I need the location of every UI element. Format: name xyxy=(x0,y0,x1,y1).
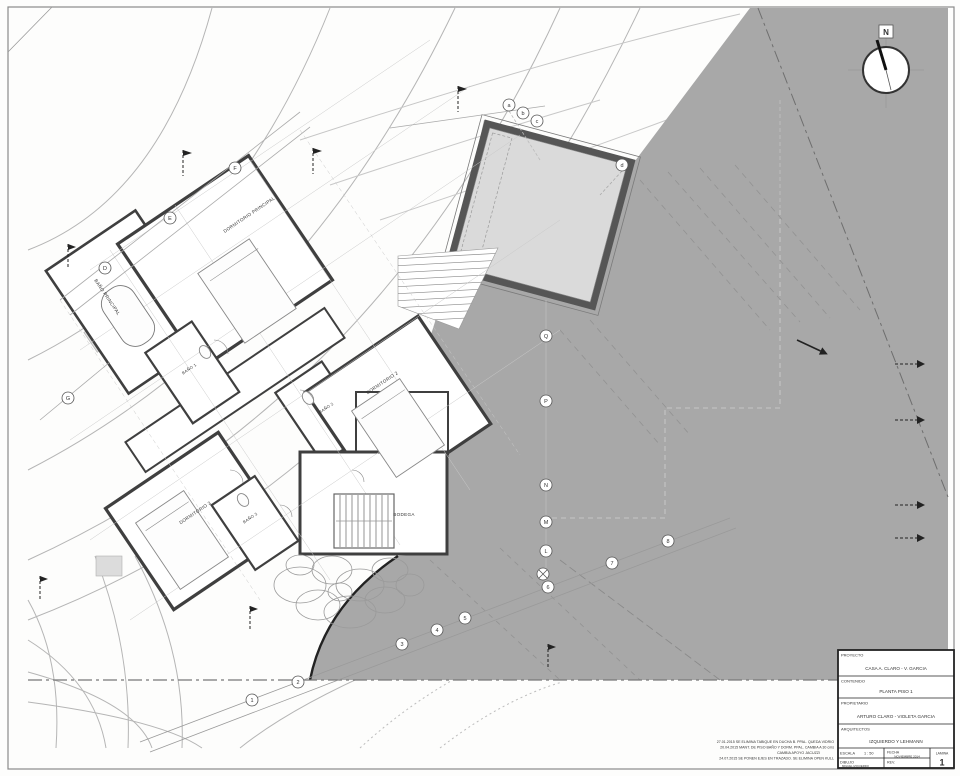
grid-label: 3 xyxy=(400,642,403,648)
grid-label: N xyxy=(544,483,548,489)
dibujo-value: MIGUEL IZQUIERDO xyxy=(842,764,870,768)
revision-note: 20.04.2015 MANT. DE PISO BAÑO Y DORM. PP… xyxy=(720,745,834,750)
grid-label: M xyxy=(544,520,549,526)
north-label: N xyxy=(883,28,889,37)
grid-label: 7 xyxy=(610,561,613,567)
escala-label: ESCALA xyxy=(840,752,855,756)
fecha-value: NOVIEMBRE 2014 xyxy=(894,755,920,759)
revision-note: 27.01.2015 SE ELIMINA TABIQUE EN DUCHA B… xyxy=(717,740,834,744)
grid-label: 8 xyxy=(666,539,669,545)
proyecto-value: CASA A. CLARO - V. GARCIA xyxy=(865,666,928,671)
grid-label: 1 xyxy=(250,698,253,704)
arquitectos-label: ARQUITECTOS xyxy=(841,727,870,732)
lamina-label: LAMINA xyxy=(936,752,949,756)
grid-label: c xyxy=(536,119,539,125)
drawing-sheet: a b c d Q P N M L 1 2 3 4 5 6 7 8 xyxy=(0,0,960,776)
grid-label: d xyxy=(620,163,623,169)
contenido-value: PLANTA PISO 1 xyxy=(879,689,913,694)
label-bodega: BODEGA xyxy=(393,512,415,517)
escala-value: 1 : 50 xyxy=(864,752,874,756)
revision-note: 24.07.2015 SE PONEN EJES EN TRAZADO. SE … xyxy=(719,757,834,761)
revision-note: CAMBIA APOYO JACUZZI xyxy=(777,751,820,755)
grid-label: b xyxy=(521,111,524,117)
grid-label: G xyxy=(66,396,70,402)
title-block: PROYECTO CASA A. CLARO - V. GARCIA CONTE… xyxy=(838,650,954,768)
grid-label: 4 xyxy=(435,628,438,634)
grid-label: Q xyxy=(544,334,549,340)
interior-stair xyxy=(334,494,394,548)
grid-label: D xyxy=(103,266,107,272)
exterior-pad xyxy=(96,556,122,576)
grid-label: L xyxy=(544,549,547,555)
propietario-value: ARTURO CLARO - VIOLETA GARCIA xyxy=(857,714,936,719)
proyecto-label: PROYECTO xyxy=(841,653,863,658)
grid-label: 6 xyxy=(546,585,549,591)
lamina-value: 1 xyxy=(939,758,944,768)
propietario-label: PROPIETARIO xyxy=(841,701,868,706)
grid-label: 5 xyxy=(463,616,466,622)
rev-label: REV. xyxy=(887,761,895,765)
floor-plan-canvas: a b c d Q P N M L 1 2 3 4 5 6 7 8 xyxy=(0,0,960,776)
contenido-label: CONTENIDO xyxy=(841,679,865,684)
grid-label: E xyxy=(168,216,172,222)
arquitectos-value: IZQUIERDO Y LEHMANN xyxy=(869,739,922,744)
grid-label: 2 xyxy=(296,680,299,686)
grid-label: P xyxy=(544,399,548,405)
